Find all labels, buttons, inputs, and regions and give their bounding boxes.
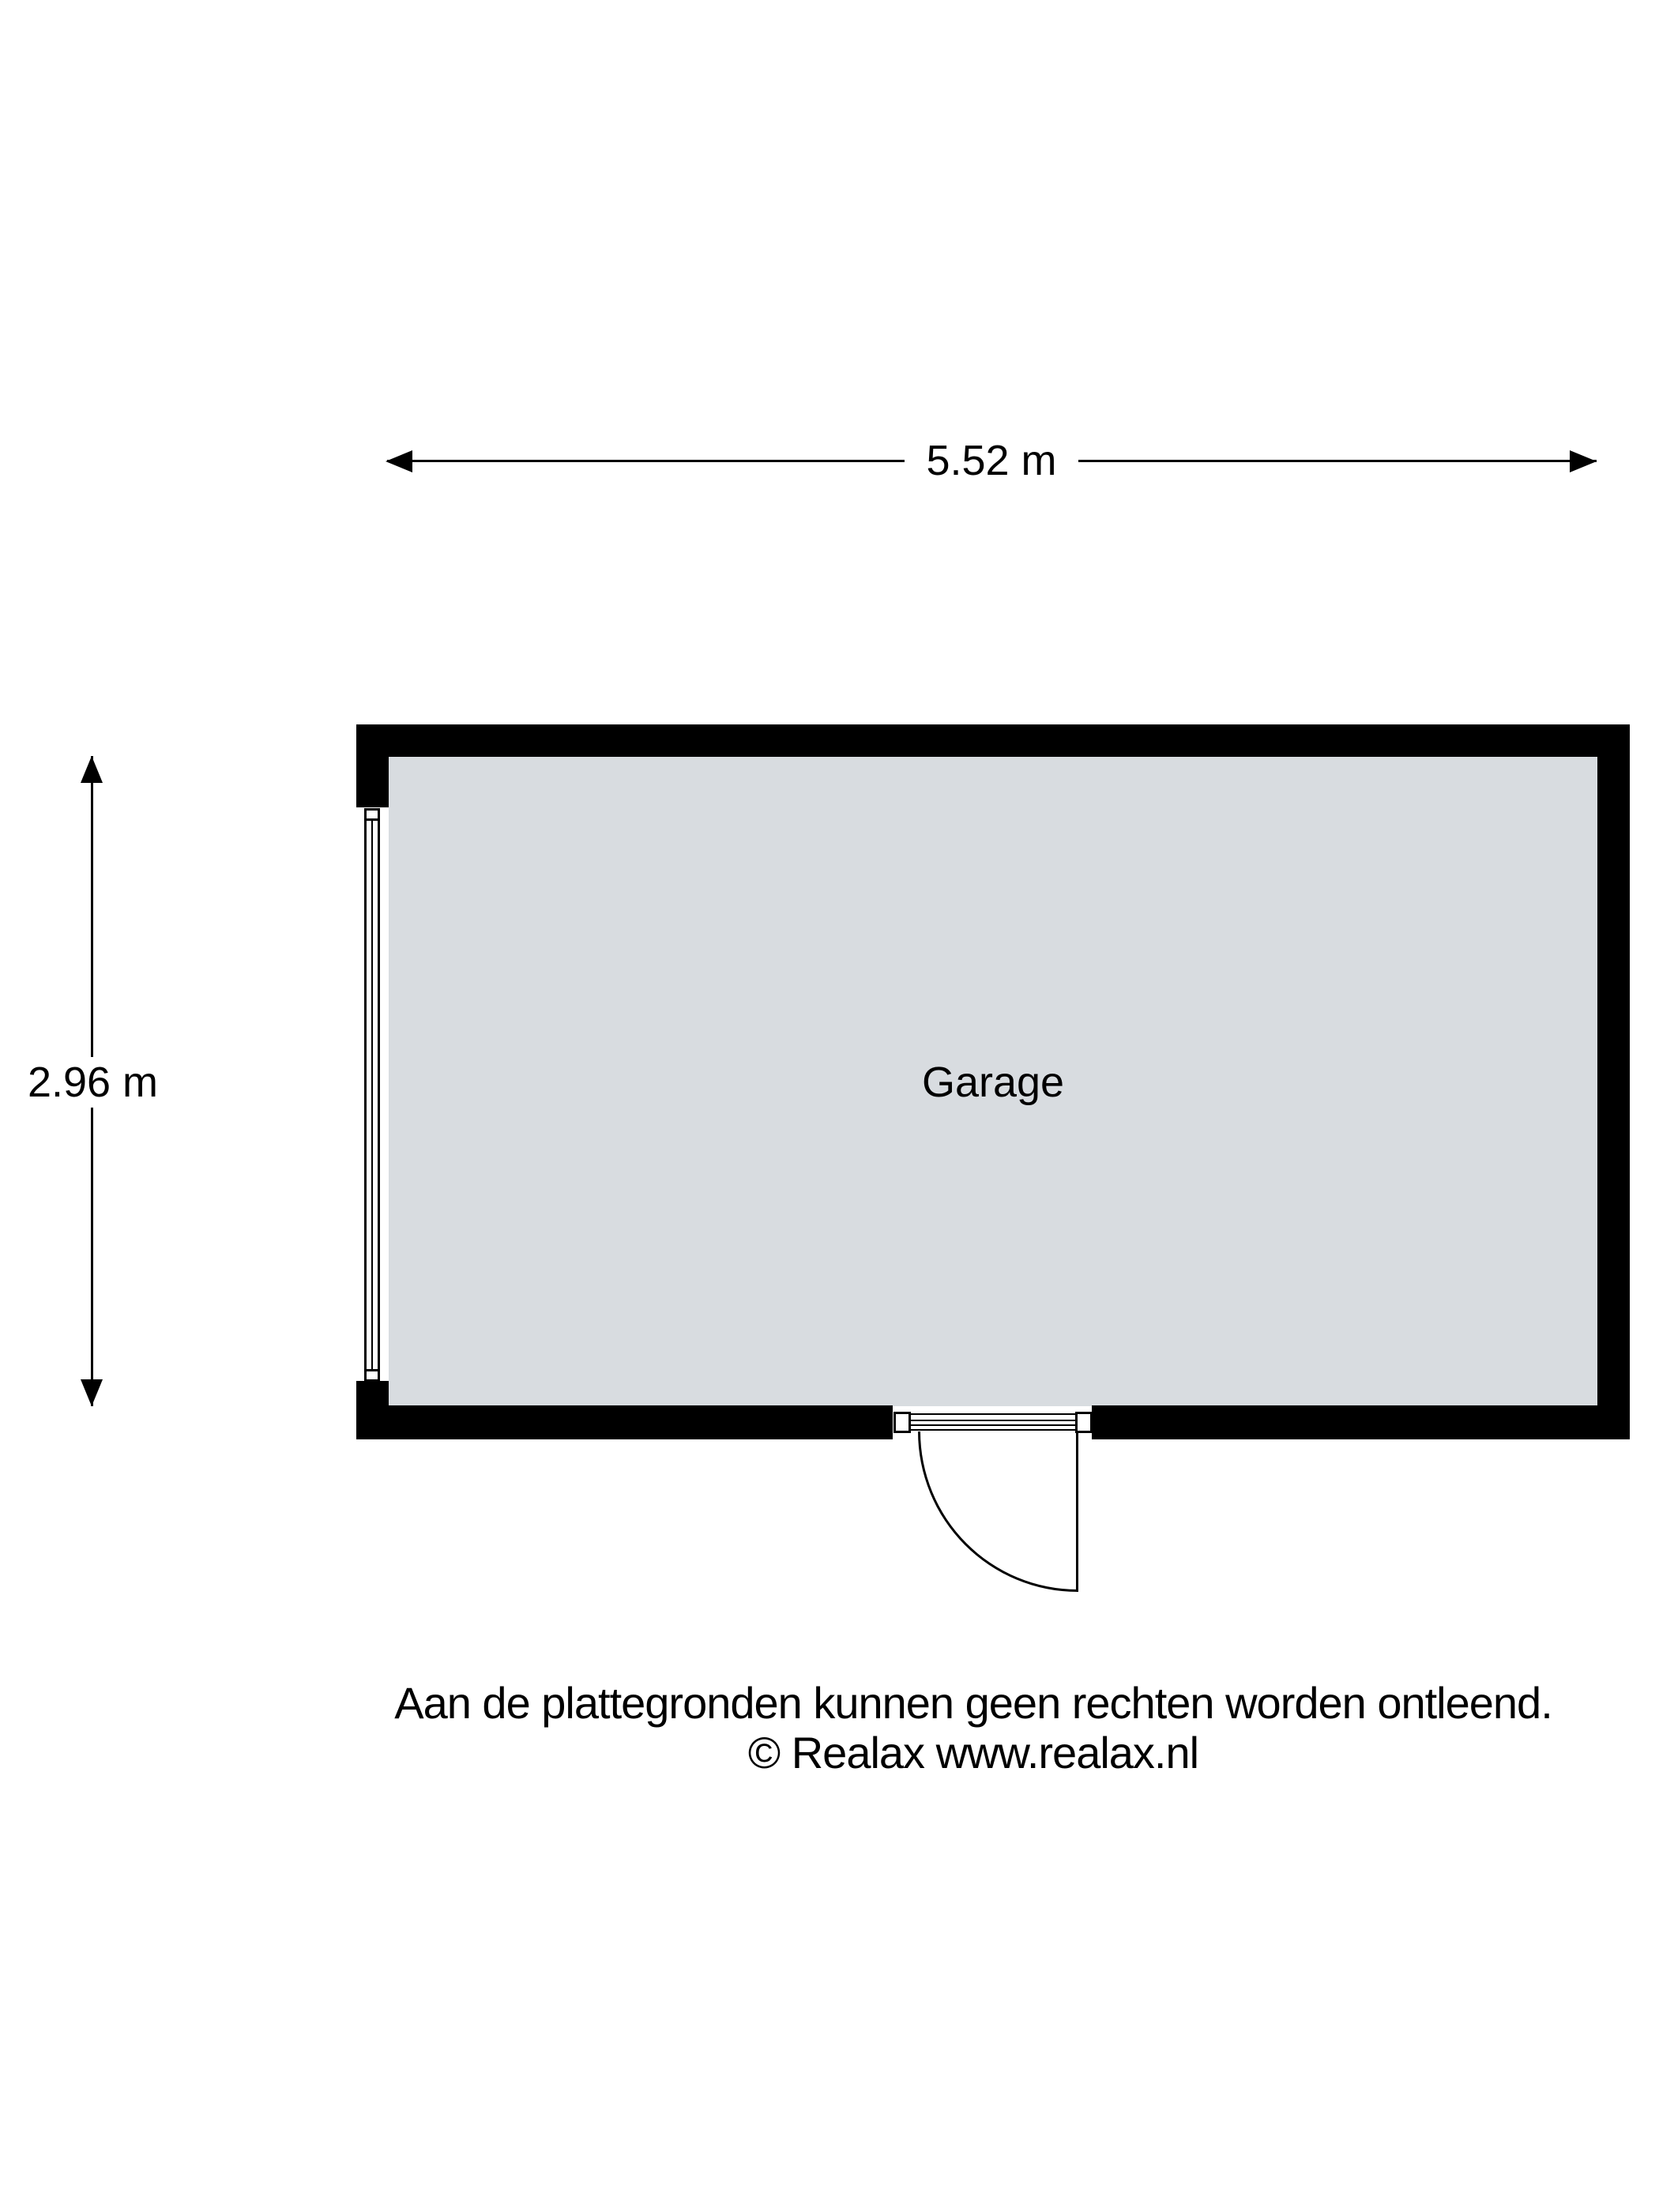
garage-door-symbol	[364, 808, 380, 1382]
wall-stub-bottom-left	[356, 1381, 389, 1439]
floor-plan: 5.52 m 2.96 m Garage Aan de plattegronde…	[0, 0, 1659, 2212]
dimension-width-arrowhead-left-icon	[386, 450, 412, 472]
dimension-width-label: 5.52 m	[905, 436, 1078, 485]
dimension-width-arrowhead-right-icon	[1570, 450, 1597, 472]
door-post-left	[893, 1412, 911, 1433]
wall-top	[356, 724, 1630, 757]
door-threshold-line	[910, 1424, 1076, 1426]
door-threshold-line	[910, 1420, 1076, 1421]
dimension-height-arrowhead-up-icon	[81, 756, 103, 783]
door-post-right	[1075, 1412, 1093, 1433]
dimension-height-label: 2.96 m	[16, 1057, 170, 1108]
door-swing-arc	[918, 1431, 1078, 1592]
room-label: Garage	[784, 1059, 1202, 1106]
wall-bottom-left-segment	[356, 1405, 893, 1439]
copyright-text: © Realax www.realax.nl	[261, 1728, 1659, 1777]
garage-door-cap-bottom	[367, 1369, 378, 1371]
wall-stub-top-left	[356, 724, 389, 807]
garage-door-midline	[371, 821, 373, 1369]
wall-bottom-right-segment	[1092, 1405, 1630, 1439]
disclaimer-text: Aan de plattegronden kunnen geen rechten…	[261, 1678, 1659, 1728]
wall-right	[1597, 724, 1630, 1439]
door-threshold	[908, 1413, 1078, 1431]
dimension-height-arrowhead-down-icon	[81, 1379, 103, 1406]
disclaimer: Aan de plattegronden kunnen geen rechten…	[261, 1678, 1659, 1777]
